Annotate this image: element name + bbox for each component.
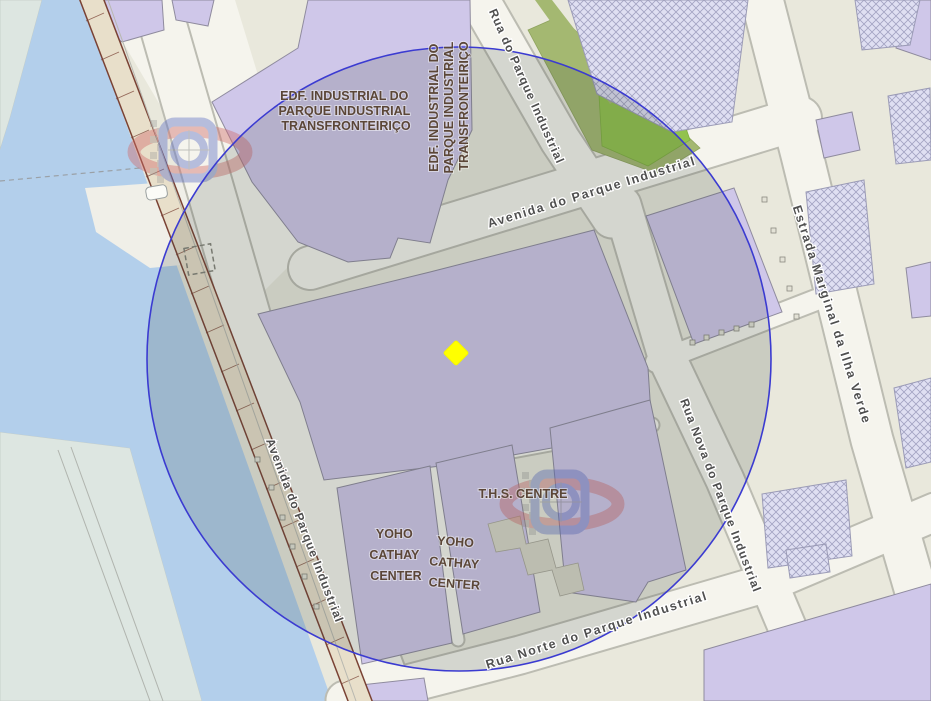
building-label-yoho-left: YOHO CATHAY CENTER	[369, 527, 422, 583]
map-canvas[interactable]: Avenida do Parque Industrial Rua do Parq…	[0, 0, 931, 701]
building-ne-small	[816, 112, 860, 158]
building-label-edf-vertical: EDF. INDUSTRIAL DO PARQUE INDUSTRIAL TRA…	[427, 39, 471, 174]
hatched-ne-small	[888, 88, 931, 164]
map-viewport[interactable]: Avenida do Parque Industrial Rua do Parq…	[0, 0, 931, 701]
hatched-bottom-right-2	[786, 544, 830, 578]
building-label-edf-horizontal: EDF. INDUSTRIAL DO PARQUE INDUSTRIAL TRA…	[279, 89, 414, 133]
hatched-top-ne	[855, 0, 920, 50]
building-label-ths-centre: T.H.S. CENTRE	[479, 487, 568, 501]
